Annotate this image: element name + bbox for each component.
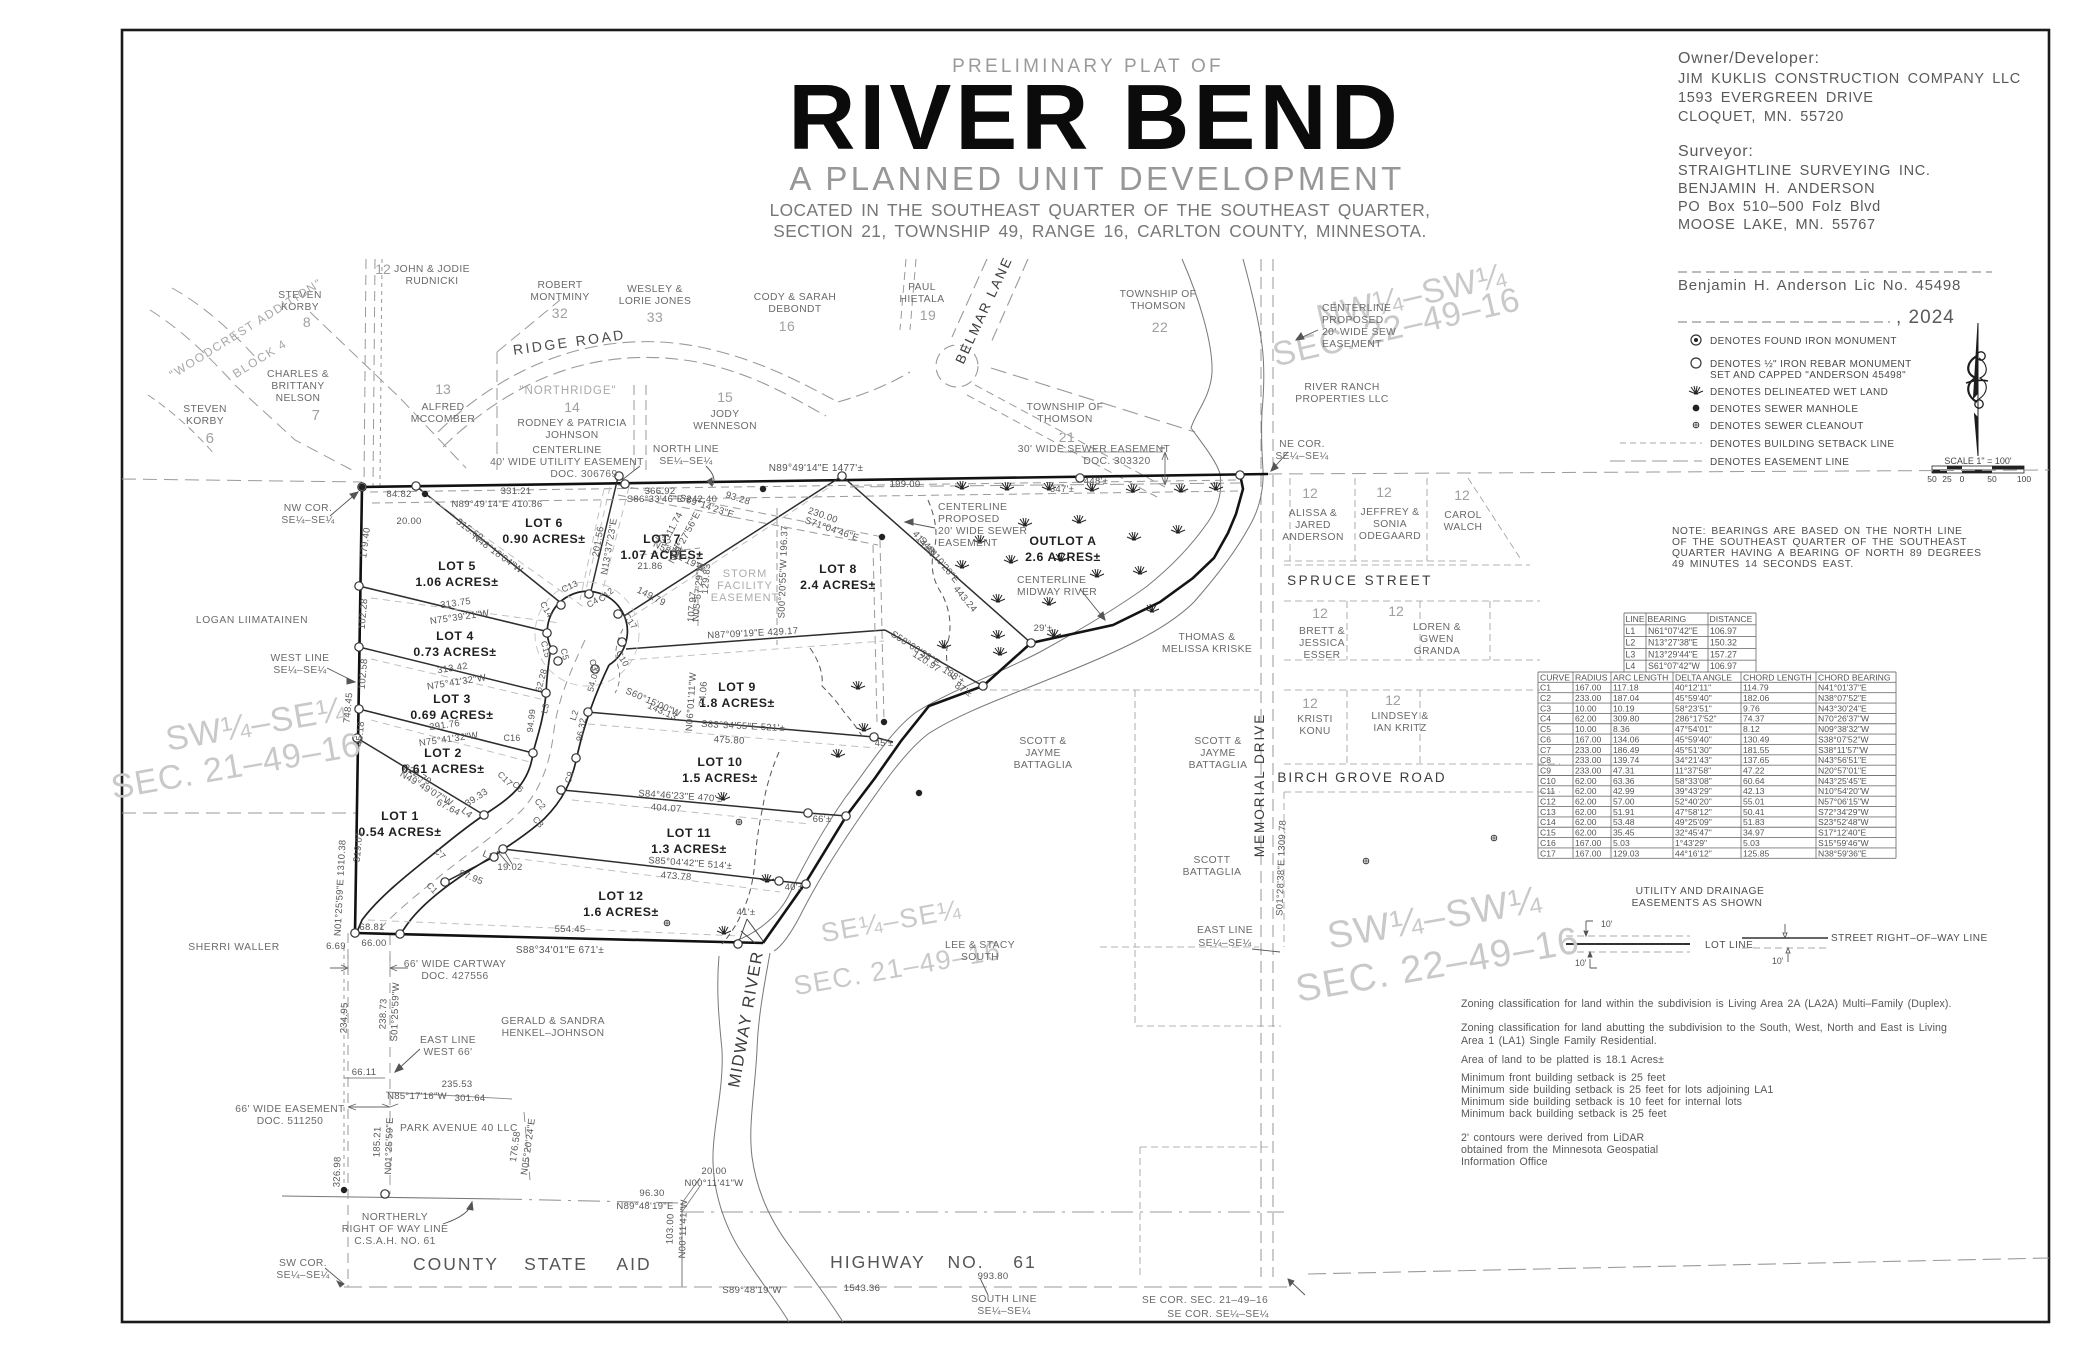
- svg-text:62.00: 62.00: [1575, 714, 1597, 724]
- svg-text:60.64: 60.64: [1743, 776, 1765, 786]
- svg-text:PARK AVENUE 40 LLC: PARK AVENUE 40 LLC: [400, 1123, 518, 1134]
- svg-text:62.00: 62.00: [1575, 807, 1597, 817]
- svg-text:JIM KUKLIS CONSTRUCTION COMPAN: JIM KUKLIS CONSTRUCTION COMPANY LLC: [1678, 71, 2021, 87]
- svg-text:0.54 ACRES±: 0.54 ACRES±: [358, 825, 441, 839]
- svg-text:DENOTES ½" IRON REBAR MONUMENT: DENOTES ½" IRON REBAR MONUMENT: [1710, 359, 1912, 370]
- svg-text:SCALE 1" = 100': SCALE 1" = 100': [1944, 456, 2011, 466]
- svg-text:34°21'43": 34°21'43": [1675, 755, 1712, 765]
- svg-text:137.65: 137.65: [1743, 755, 1770, 765]
- svg-text:GWEN: GWEN: [1420, 634, 1454, 645]
- svg-text:50.41: 50.41: [1743, 807, 1765, 817]
- svg-text:41'±: 41'±: [737, 907, 756, 918]
- svg-text:L3: L3: [539, 702, 551, 714]
- svg-text:Zoning classification for land: Zoning classification for land within th…: [1461, 998, 1952, 1010]
- svg-text:1.6 ACRES±: 1.6 ACRES±: [583, 905, 659, 919]
- svg-text:EASEMENTS AS SHOWN: EASEMENTS AS SHOWN: [1632, 898, 1763, 909]
- svg-text:HENKEL–JOHNSON: HENKEL–JOHNSON: [502, 1028, 605, 1039]
- svg-text:52°40'20": 52°40'20": [1675, 797, 1712, 807]
- svg-text:12: 12: [1302, 695, 1318, 711]
- svg-text:THOMSON: THOMSON: [1037, 414, 1092, 425]
- svg-text:SE¼–SE¼: SE¼–SE¼: [276, 1269, 329, 1281]
- svg-text:N38°59'36"E: N38°59'36"E: [1818, 848, 1867, 858]
- svg-text:19.02: 19.02: [497, 862, 522, 873]
- svg-text:Area of land to be platted is: Area of land to be platted is 18.1 Acres…: [1461, 1054, 1664, 1066]
- svg-text:C11: C11: [1540, 786, 1555, 796]
- svg-text:SE¼–SE¼: SE¼–SE¼: [977, 1305, 1030, 1317]
- svg-text:40' WIDE UTILITY EASEMENT: 40' WIDE UTILITY EASEMENT: [490, 457, 644, 468]
- svg-text:LINDSEY &: LINDSEY &: [1371, 711, 1428, 722]
- svg-text:Area 1 (LA1) Single Family Res: Area 1 (LA1) Single Family Residential.: [1461, 1035, 1657, 1047]
- svg-text:BATTAGLIA: BATTAGLIA: [1014, 760, 1073, 771]
- svg-text:DENOTES EASEMENT LINE: DENOTES EASEMENT LINE: [1710, 457, 1849, 468]
- svg-text:21.86: 21.86: [637, 561, 662, 572]
- svg-text:45'±: 45'±: [875, 738, 894, 749]
- svg-text:N38°07'52"E: N38°07'52"E: [1818, 693, 1867, 703]
- svg-text:10': 10': [1772, 956, 1784, 966]
- svg-text:47°54'01": 47°54'01": [1675, 724, 1712, 734]
- svg-text:N00°11'41"W: N00°11'41"W: [677, 1199, 690, 1258]
- svg-text:96.30: 96.30: [639, 1188, 664, 1199]
- svg-text:233.00: 233.00: [1575, 755, 1602, 765]
- svg-text:N43°30'24"E: N43°30'24"E: [1818, 703, 1867, 713]
- svg-text:8.36: 8.36: [1613, 724, 1630, 734]
- svg-text:62.00: 62.00: [1575, 786, 1597, 796]
- svg-text:233.00: 233.00: [1575, 693, 1602, 703]
- svg-text:C16: C16: [1540, 838, 1556, 848]
- svg-text:129.03: 129.03: [1613, 848, 1640, 858]
- svg-text:LINE: LINE: [1626, 614, 1645, 624]
- svg-text:1593 EVERGREEN DRIVE: 1593 EVERGREEN DRIVE: [1678, 90, 1874, 106]
- svg-text:PROPOSED: PROPOSED: [1322, 315, 1384, 326]
- svg-text:10.00: 10.00: [1575, 724, 1597, 734]
- svg-text:N13°29'44"E: N13°29'44"E: [1648, 649, 1698, 659]
- svg-text:66.11: 66.11: [352, 1067, 377, 1078]
- svg-text:C10: C10: [1540, 776, 1556, 786]
- svg-text:N20°57'01"E: N20°57'01"E: [1818, 765, 1867, 775]
- svg-text:150.32: 150.32: [1710, 638, 1737, 648]
- svg-text:21: 21: [1059, 429, 1076, 445]
- svg-text:40'±: 40'±: [785, 882, 804, 893]
- svg-text:9.76: 9.76: [1743, 703, 1760, 713]
- svg-text:SET AND CAPPED "ANDERSON 45498: SET AND CAPPED "ANDERSON 45498": [1710, 370, 1906, 381]
- svg-text:CENTERLINE: CENTERLINE: [532, 445, 601, 456]
- svg-text:PAUL: PAUL: [908, 282, 936, 293]
- svg-text:SE¼–SE¼: SE¼–SE¼: [1275, 450, 1328, 462]
- svg-text:22: 22: [1152, 319, 1169, 335]
- svg-text:42.99: 42.99: [1613, 786, 1635, 796]
- svg-text:MOOSE LAKE, MN. 55767: MOOSE LAKE, MN. 55767: [1678, 217, 1876, 233]
- svg-text:LOT LINE: LOT LINE: [1705, 940, 1753, 951]
- svg-text:LOGAN LIIMATAINEN: LOGAN LIIMATAINEN: [196, 615, 308, 626]
- svg-text:PROPOSED: PROPOSED: [938, 514, 1000, 525]
- svg-text:14: 14: [564, 399, 580, 415]
- svg-text:1.3 ACRES±: 1.3 ACRES±: [651, 842, 727, 856]
- svg-text:182.06: 182.06: [1743, 693, 1770, 703]
- svg-text:Minimum side building setback: Minimum side building setback is 25 feet…: [1461, 1084, 1773, 1096]
- svg-text:, 2024: , 2024: [1896, 307, 1955, 328]
- svg-text:Information Office: Information Office: [1461, 1156, 1548, 1168]
- svg-text:N89°49'14"E 1477'±: N89°49'14"E 1477'±: [769, 463, 864, 474]
- svg-text:LOT 9: LOT 9: [718, 680, 756, 694]
- svg-text:35.45: 35.45: [1613, 828, 1635, 838]
- svg-text:ESSER: ESSER: [1304, 650, 1341, 661]
- svg-text:AID: AID: [616, 1254, 651, 1274]
- svg-text:134.06: 134.06: [1613, 734, 1640, 744]
- svg-text:C15: C15: [1540, 828, 1556, 838]
- svg-text:JOHN & JODIE: JOHN & JODIE: [394, 264, 470, 275]
- svg-text:51.91: 51.91: [1613, 807, 1635, 817]
- svg-text:Zoning classification for land: Zoning classification for land abutting …: [1461, 1022, 1947, 1034]
- svg-text:SOUTH: SOUTH: [961, 952, 999, 963]
- svg-text:NO.: NO.: [947, 1252, 984, 1272]
- svg-text:DENOTES SEWER MANHOLE: DENOTES SEWER MANHOLE: [1710, 404, 1858, 415]
- svg-text:74.06: 74.06: [697, 681, 710, 707]
- svg-text:PO Box 510–500 Folz Blvd: PO Box 510–500 Folz Blvd: [1678, 199, 1881, 215]
- svg-text:53.48: 53.48: [1613, 817, 1635, 827]
- svg-text:STORM: STORM: [723, 568, 768, 580]
- svg-text:20' WIDE SEW: 20' WIDE SEW: [1322, 327, 1396, 338]
- svg-text:5.03: 5.03: [1743, 838, 1760, 848]
- svg-text:DENOTES DELINEATED WET LAND: DENOTES DELINEATED WET LAND: [1710, 387, 1888, 398]
- svg-text:WENNESON: WENNESON: [693, 421, 757, 432]
- svg-text:139.74: 139.74: [1613, 755, 1640, 765]
- svg-text:50: 50: [1927, 474, 1937, 484]
- svg-text:47°58'12": 47°58'12": [1675, 807, 1712, 817]
- svg-text:0.90 ACRES±: 0.90 ACRES±: [502, 532, 585, 546]
- svg-text:331.21: 331.21: [501, 486, 532, 497]
- svg-text:TOWNSHIP OF: TOWNSHIP OF: [1027, 402, 1104, 413]
- svg-text:SE¼–SE¼: SE¼–SE¼: [281, 514, 334, 526]
- svg-text:448'±: 448'±: [1084, 476, 1108, 487]
- svg-text:12: 12: [1385, 692, 1401, 708]
- svg-text:185.21: 185.21: [371, 1126, 383, 1157]
- svg-text:"NORTHRIDGE": "NORTHRIDGE": [519, 385, 616, 397]
- svg-text:157.27: 157.27: [1710, 649, 1737, 659]
- svg-text:C4: C4: [1540, 714, 1551, 724]
- svg-text:C3: C3: [1540, 703, 1551, 713]
- svg-text:647'±: 647'±: [1050, 484, 1074, 495]
- svg-text:QUARTER HAVING A BEARING OF NO: QUARTER HAVING A BEARING OF NORTH 89 DEG…: [1672, 548, 1982, 559]
- svg-text:NORTH LINE: NORTH LINE: [653, 444, 719, 455]
- svg-text:EASEMENT: EASEMENT: [711, 592, 780, 604]
- svg-text:DENOTES FOUND IRON MONUMENT: DENOTES FOUND IRON MONUMENT: [1710, 336, 1897, 347]
- svg-text:S38°07'52"W: S38°07'52"W: [1818, 734, 1870, 744]
- svg-text:326.98: 326.98: [331, 1156, 343, 1187]
- svg-text:58°23'51": 58°23'51": [1675, 703, 1712, 713]
- svg-text:199.00: 199.00: [890, 479, 921, 490]
- svg-text:CENTERLINE: CENTERLINE: [1017, 575, 1086, 586]
- svg-text:PROPERTIES LLC: PROPERTIES LLC: [1295, 394, 1389, 405]
- svg-text:10.00: 10.00: [1575, 703, 1597, 713]
- svg-text:EAST LINE: EAST LINE: [1197, 925, 1253, 936]
- svg-text:45.18: 45.18: [354, 721, 367, 747]
- svg-text:CENTERLINE: CENTERLINE: [938, 502, 1007, 513]
- svg-text:N13°27'38"E: N13°27'38"E: [1648, 638, 1698, 648]
- svg-text:993.80: 993.80: [978, 1271, 1009, 1282]
- svg-text:SPRUCE STREET: SPRUCE STREET: [1287, 573, 1433, 588]
- svg-text:167.00: 167.00: [1575, 838, 1602, 848]
- svg-text:Owner/Developer:: Owner/Developer:: [1678, 50, 1820, 67]
- svg-text:34.97: 34.97: [1743, 828, 1765, 838]
- svg-text:GERALD & SANDRA: GERALD & SANDRA: [501, 1016, 605, 1027]
- svg-text:WEST 66': WEST 66': [423, 1047, 472, 1058]
- svg-text:233.00: 233.00: [1575, 745, 1602, 755]
- svg-text:UTILITY AND DRAINAGE: UTILITY AND DRAINAGE: [1636, 886, 1765, 897]
- svg-text:L2: L2: [1626, 638, 1636, 648]
- svg-text:THOMAS &: THOMAS &: [1179, 632, 1236, 643]
- svg-text:LOT 10: LOT 10: [697, 755, 742, 769]
- svg-text:DELTA ANGLE: DELTA ANGLE: [1675, 672, 1732, 682]
- svg-text:66'±: 66'±: [813, 814, 832, 825]
- svg-text:SONIA: SONIA: [1373, 519, 1407, 530]
- svg-text:N70°26'37"W: N70°26'37"W: [1818, 714, 1870, 724]
- svg-text:COUNTY: COUNTY: [413, 1254, 499, 1274]
- svg-text:2.4 ACRES±: 2.4 ACRES±: [800, 578, 876, 592]
- svg-text:1.06 ACRES±: 1.06 ACRES±: [415, 575, 498, 589]
- svg-text:47.22: 47.22: [1743, 765, 1765, 775]
- svg-text:MONTMINY: MONTMINY: [530, 292, 589, 303]
- svg-text:ALISSA &: ALISSA &: [1289, 508, 1337, 519]
- svg-text:404.07: 404.07: [650, 802, 682, 815]
- svg-text:DEBONDT: DEBONDT: [768, 304, 821, 315]
- svg-text:44°16'12": 44°16'12": [1675, 848, 1712, 858]
- svg-text:13: 13: [435, 381, 451, 397]
- svg-text:N89°49'14"E 410.86: N89°49'14"E 410.86: [452, 499, 543, 510]
- svg-text:186.49: 186.49: [1613, 745, 1640, 755]
- svg-text:Minimum back building setback: Minimum back building setback is 25 feet: [1461, 1108, 1667, 1120]
- svg-text:49°25'09": 49°25'09": [1675, 817, 1712, 827]
- svg-text:10': 10': [1601, 919, 1613, 929]
- svg-text:63.36: 63.36: [1613, 776, 1635, 786]
- svg-text:20' WIDE SEWER: 20' WIDE SEWER: [938, 526, 1027, 537]
- svg-text:19: 19: [920, 307, 937, 323]
- svg-text:JARED: JARED: [1295, 520, 1331, 531]
- svg-text:234.95: 234.95: [338, 1002, 350, 1033]
- svg-text:JAYME: JAYME: [1200, 748, 1236, 759]
- svg-text:33: 33: [647, 309, 664, 325]
- svg-text:N89°48'19"E: N89°48'19"E: [616, 1201, 673, 1212]
- svg-text:N09°38'32"W: N09°38'32"W: [1818, 724, 1870, 734]
- svg-text:45°59'40": 45°59'40": [1675, 734, 1712, 744]
- svg-text:N85°17'16"W: N85°17'16"W: [387, 1091, 447, 1102]
- svg-text:51.83: 51.83: [1743, 817, 1765, 827]
- svg-text:obtained from the Minnesota Ge: obtained from the Minnesota Geospatial: [1461, 1144, 1658, 1156]
- svg-text:C2: C2: [1540, 693, 1551, 703]
- svg-text:301.64: 301.64: [455, 1093, 486, 1104]
- svg-text:1.8 ACRES±: 1.8 ACRES±: [699, 696, 775, 710]
- svg-text:8: 8: [303, 314, 311, 330]
- svg-text:106.97: 106.97: [1710, 661, 1737, 671]
- svg-text:187.04: 187.04: [1613, 693, 1640, 703]
- svg-text:LOCATED IN THE SOUTHEAST QUART: LOCATED IN THE SOUTHEAST QUARTER OF THE …: [770, 200, 1431, 220]
- svg-text:68.81: 68.81: [359, 922, 384, 933]
- svg-text:ALFRED: ALFRED: [421, 402, 464, 413]
- svg-text:NELSON: NELSON: [276, 393, 321, 404]
- svg-text:ODEGAARD: ODEGAARD: [1359, 531, 1421, 542]
- svg-text:JODY: JODY: [710, 409, 739, 420]
- svg-text:100: 100: [2017, 474, 2031, 484]
- svg-text:C1: C1: [1540, 683, 1551, 693]
- svg-text:66.00: 66.00: [361, 938, 386, 949]
- svg-text:IAN KRITZ: IAN KRITZ: [1373, 723, 1426, 734]
- svg-text:N61°07'42"E: N61°07'42"E: [1648, 626, 1698, 636]
- svg-text:BATTAGLIA: BATTAGLIA: [1189, 760, 1248, 771]
- svg-text:62.00: 62.00: [1575, 828, 1597, 838]
- svg-text:50: 50: [1987, 474, 1997, 484]
- svg-text:HIETALA: HIETALA: [900, 294, 945, 305]
- svg-text:CAROL: CAROL: [1444, 510, 1481, 521]
- svg-text:N43°25'45"E: N43°25'45"E: [1818, 776, 1867, 786]
- svg-text:JAYME: JAYME: [1025, 748, 1061, 759]
- svg-text:1.5 ACRES±: 1.5 ACRES±: [682, 771, 758, 785]
- svg-text:BENJAMIN H. ANDERSON: BENJAMIN H. ANDERSON: [1678, 181, 1875, 197]
- svg-text:103.00: 103.00: [664, 1213, 676, 1244]
- svg-text:RIVER RANCH: RIVER RANCH: [1304, 382, 1379, 393]
- svg-text:167.00: 167.00: [1575, 683, 1602, 693]
- svg-text:LEE & STACY: LEE & STACY: [945, 940, 1015, 951]
- svg-text:WESLEY &: WESLEY &: [627, 284, 683, 295]
- svg-text:S15°59'46"W: S15°59'46"W: [1818, 838, 1870, 848]
- svg-text:NORTHERLY: NORTHERLY: [362, 1212, 428, 1223]
- svg-text:11°37'58": 11°37'58": [1675, 765, 1711, 775]
- svg-text:BEARING: BEARING: [1648, 614, 1687, 624]
- svg-text:15: 15: [717, 389, 733, 405]
- svg-text:DOC. 427556: DOC. 427556: [421, 971, 488, 982]
- svg-text:12: 12: [1376, 484, 1392, 500]
- svg-text:L4: L4: [1626, 661, 1636, 671]
- svg-text:C17: C17: [1540, 848, 1556, 858]
- svg-text:STEVEN: STEVEN: [183, 404, 227, 415]
- svg-text:BRETT &: BRETT &: [1299, 626, 1345, 637]
- svg-text:309.80: 309.80: [1613, 714, 1640, 724]
- svg-text:ARC LENGTH: ARC LENGTH: [1613, 672, 1668, 682]
- svg-text:130.49: 130.49: [1743, 734, 1770, 744]
- svg-text:117.18: 117.18: [1613, 683, 1639, 693]
- svg-text:25: 25: [1942, 474, 1952, 484]
- svg-text:233.00: 233.00: [1575, 765, 1602, 775]
- svg-text:SHERRI WALLER: SHERRI WALLER: [188, 942, 280, 953]
- svg-text:Benjamin H. Anderson Lic No. 4: Benjamin H. Anderson Lic No. 45498: [1678, 277, 1961, 294]
- svg-text:32: 32: [552, 305, 569, 321]
- svg-text:L3: L3: [1626, 649, 1636, 659]
- svg-text:Surveyor:: Surveyor:: [1678, 143, 1754, 160]
- svg-text:S89°48'19"W: S89°48'19"W: [722, 1285, 781, 1296]
- svg-text:HIGHWAY: HIGHWAY: [830, 1252, 926, 1272]
- svg-text:STATE: STATE: [524, 1254, 588, 1274]
- svg-text:FACILITY: FACILITY: [717, 580, 773, 592]
- svg-text:LORIE JONES: LORIE JONES: [619, 296, 692, 307]
- svg-text:S01°25'59"W: S01°25'59"W: [389, 982, 402, 1042]
- svg-text:MELISSA KRISKE: MELISSA KRISKE: [1162, 644, 1252, 655]
- svg-text:12: 12: [1388, 603, 1404, 619]
- svg-text:NE COR.: NE COR.: [1279, 439, 1325, 450]
- svg-text:16: 16: [779, 318, 796, 334]
- svg-text:58°33'08": 58°33'08": [1675, 776, 1712, 786]
- svg-text:57.00: 57.00: [1613, 797, 1635, 807]
- svg-text:EAST LINE: EAST LINE: [420, 1035, 476, 1046]
- svg-text:CHORD LENGTH: CHORD LENGTH: [1743, 672, 1812, 682]
- svg-text:CENTERLINE: CENTERLINE: [1322, 303, 1391, 314]
- svg-text:2.6 ACRES±: 2.6 ACRES±: [1025, 550, 1101, 564]
- svg-text:LOT 5: LOT 5: [438, 559, 476, 573]
- svg-text:C9: C9: [1540, 765, 1551, 775]
- svg-text:39°43'29": 39°43'29": [1675, 786, 1712, 796]
- svg-text:C5: C5: [1540, 724, 1551, 734]
- svg-text:62.00: 62.00: [1575, 817, 1597, 827]
- svg-text:473.78: 473.78: [660, 870, 692, 883]
- svg-text:MIDWAY RIVER: MIDWAY RIVER: [1017, 587, 1097, 598]
- svg-text:SE¼–SE¼: SE¼–SE¼: [659, 455, 712, 467]
- svg-text:KRISTI: KRISTI: [1297, 714, 1333, 725]
- svg-text:235.53: 235.53: [442, 1079, 473, 1090]
- svg-text:55.01: 55.01: [1743, 797, 1765, 807]
- svg-text:N01°25'59"E: N01°25'59"E: [383, 1117, 396, 1175]
- svg-text:C16: C16: [503, 733, 520, 743]
- svg-text:MEMORIAL DRIVE: MEMORIAL DRIVE: [1252, 713, 1267, 858]
- svg-text:S88°34'01"E 671'±: S88°34'01"E 671'±: [516, 945, 604, 956]
- svg-text:Minimum front building setback: Minimum front building setback is 25 fee…: [1461, 1072, 1665, 1084]
- svg-text:SCOTT &: SCOTT &: [1194, 736, 1241, 747]
- svg-text:106.97: 106.97: [1710, 626, 1737, 636]
- svg-text:TOWNSHIP OF: TOWNSHIP OF: [1120, 289, 1197, 300]
- svg-text:DOC. 511250: DOC. 511250: [257, 1116, 324, 1127]
- svg-text:SE¼–SE¼: SE¼–SE¼: [273, 664, 326, 676]
- svg-text:CURVE: CURVE: [1540, 672, 1570, 682]
- svg-text:OF THE SOUTHEAST QUARTER OF TH: OF THE SOUTHEAST QUARTER OF THE SOUTHEAS…: [1672, 537, 1967, 548]
- svg-text:SE¼–SE¼: SE¼–SE¼: [1198, 937, 1251, 949]
- svg-text:LOT 12: LOT 12: [598, 889, 643, 903]
- svg-text:C6: C6: [1540, 734, 1551, 744]
- svg-text:12: 12: [1302, 485, 1318, 501]
- svg-text:C7: C7: [1540, 745, 1551, 755]
- svg-text:10.19: 10.19: [1613, 703, 1635, 713]
- svg-text:CODY & SARAH: CODY & SARAH: [754, 292, 836, 303]
- svg-text:167.00: 167.00: [1575, 734, 1602, 744]
- svg-text:7: 7: [312, 407, 321, 424]
- svg-text:DOC. 306769: DOC. 306769: [550, 469, 617, 480]
- svg-text:6.69: 6.69: [326, 941, 346, 952]
- svg-text:45°59'40": 45°59'40": [1675, 693, 1712, 703]
- svg-text:84.82: 84.82: [386, 489, 411, 500]
- svg-text:181.55: 181.55: [1743, 745, 1770, 755]
- svg-text:KORBY: KORBY: [186, 416, 224, 427]
- svg-text:JEFFREY &: JEFFREY &: [1361, 507, 1420, 518]
- svg-text:SECTION 21, TOWNSHIP 49, RANGE: SECTION 21, TOWNSHIP 49, RANGE 16, CARLT…: [773, 221, 1427, 241]
- svg-text:L1: L1: [1626, 626, 1636, 636]
- svg-text:DOC. 303320: DOC. 303320: [1083, 456, 1150, 467]
- svg-text:238.73: 238.73: [377, 998, 389, 1029]
- svg-text:1543.36: 1543.36: [844, 1283, 880, 1294]
- svg-text:20.00: 20.00: [396, 516, 421, 527]
- svg-text:C.S.A.H. NO. 61: C.S.A.H. NO. 61: [354, 1236, 436, 1247]
- svg-text:DENOTES SEWER CLEANOUT: DENOTES SEWER CLEANOUT: [1710, 421, 1864, 432]
- svg-text:C12: C12: [1540, 797, 1556, 807]
- svg-text:40°12'11": 40°12'11": [1675, 683, 1711, 693]
- svg-text:Minimum side building setback: Minimum side building setback is 10 feet…: [1461, 1096, 1742, 1108]
- svg-text:DENOTES BUILDING SETBACK LINE: DENOTES BUILDING SETBACK LINE: [1710, 439, 1894, 450]
- svg-text:JESSICA: JESSICA: [1299, 638, 1345, 649]
- svg-text:S38°11'57"W: S38°11'57"W: [1818, 745, 1869, 755]
- svg-text:THOMSON: THOMSON: [1130, 301, 1185, 312]
- svg-text:LOT 2: LOT 2: [424, 746, 462, 760]
- svg-text:114.79: 114.79: [1743, 683, 1769, 693]
- svg-text:GRANDA: GRANDA: [1414, 646, 1460, 657]
- svg-text:5.03: 5.03: [1613, 838, 1630, 848]
- svg-text:LOT 8: LOT 8: [819, 562, 857, 576]
- svg-text:SCOTT &: SCOTT &: [1019, 736, 1066, 747]
- svg-text:KONU: KONU: [1299, 726, 1330, 737]
- svg-text:32°45'47": 32°45'47": [1675, 828, 1712, 838]
